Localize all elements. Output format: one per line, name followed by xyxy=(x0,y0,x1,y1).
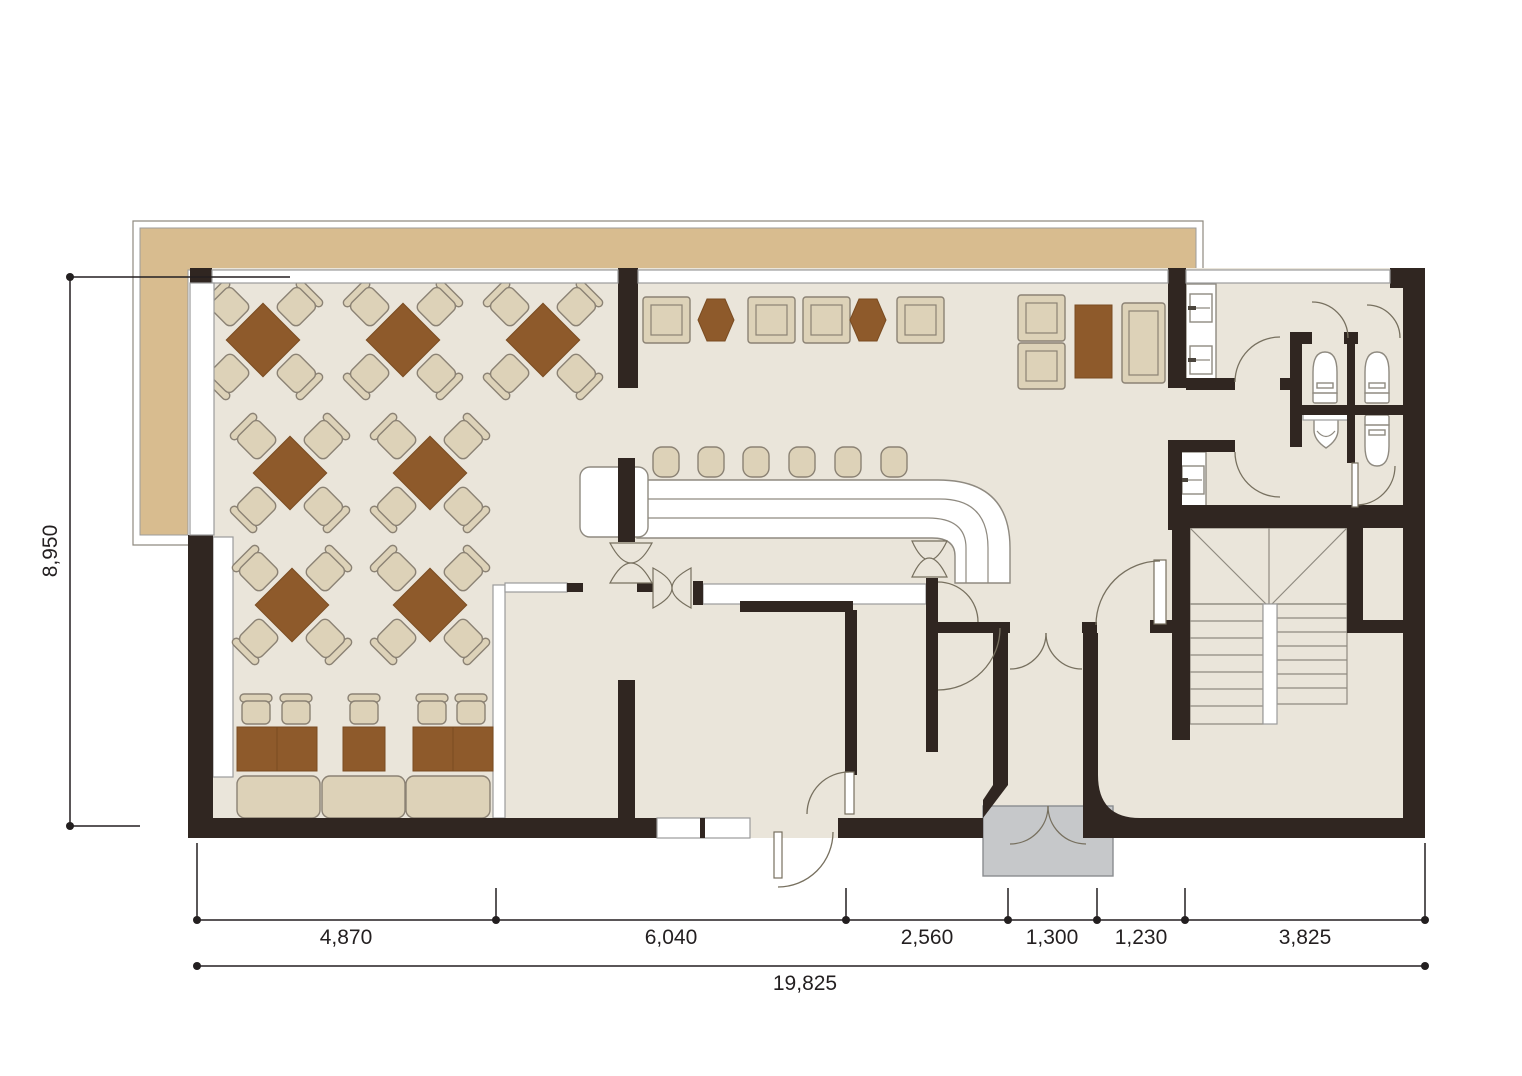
bar-stool xyxy=(743,447,769,477)
booth-chair xyxy=(455,694,487,724)
sink xyxy=(1180,466,1204,494)
booth-chair xyxy=(348,694,380,724)
dimension-segment-label: 4,870 xyxy=(320,926,373,949)
bar-stool xyxy=(698,447,724,477)
dimension-segment-label: 2,560 xyxy=(901,926,954,949)
bar-stool xyxy=(789,447,815,477)
dining-partition-wall xyxy=(493,585,505,818)
booth-chair xyxy=(280,694,312,724)
loveseat xyxy=(1122,303,1165,383)
booth-chair xyxy=(240,694,272,724)
toilet xyxy=(1365,415,1389,466)
toilet xyxy=(1365,352,1389,403)
bar-stool xyxy=(881,447,907,477)
lounge-armchair xyxy=(803,297,850,343)
dimension-segment-label: 1,230 xyxy=(1115,926,1168,949)
booth-table xyxy=(343,727,385,771)
window-band xyxy=(190,283,214,535)
stair-divider xyxy=(1263,604,1277,724)
window-band xyxy=(638,270,1168,283)
wall-lining-strip xyxy=(213,537,233,777)
dimension-height-label: 8,950 xyxy=(39,525,62,578)
lounge-armchair xyxy=(897,297,944,343)
floor-plan-drawing: 8,950 4,870 6,040 2,560 1,300 1,230 3,82… xyxy=(0,0,1522,1076)
dimension-segment-label: 6,040 xyxy=(645,926,698,949)
lounge-armchair xyxy=(1018,295,1065,341)
dimension-segment-label: 1,300 xyxy=(1026,926,1079,949)
bench-section xyxy=(406,776,490,818)
sink xyxy=(1188,294,1212,322)
floor-plan-page: 8,950 4,870 6,040 2,560 1,300 1,230 3,82… xyxy=(0,0,1522,1076)
lounge-armchair xyxy=(643,297,690,343)
lounge-armchair xyxy=(748,297,795,343)
low-partition xyxy=(505,583,567,592)
dimension-segment-label: 3,825 xyxy=(1279,926,1332,949)
lounge-armchair xyxy=(1018,343,1065,389)
toilet xyxy=(1313,352,1337,403)
bench-section xyxy=(322,776,405,818)
coffee-table xyxy=(1075,305,1112,378)
sink xyxy=(1188,346,1212,374)
dimension-total-label: 19,825 xyxy=(773,972,837,995)
booth-chair xyxy=(416,694,448,724)
window-band xyxy=(1186,270,1390,283)
bar-stool xyxy=(835,447,861,477)
bar-counter-end xyxy=(580,467,648,537)
bench-section xyxy=(237,776,320,818)
bar-stool xyxy=(653,447,679,477)
